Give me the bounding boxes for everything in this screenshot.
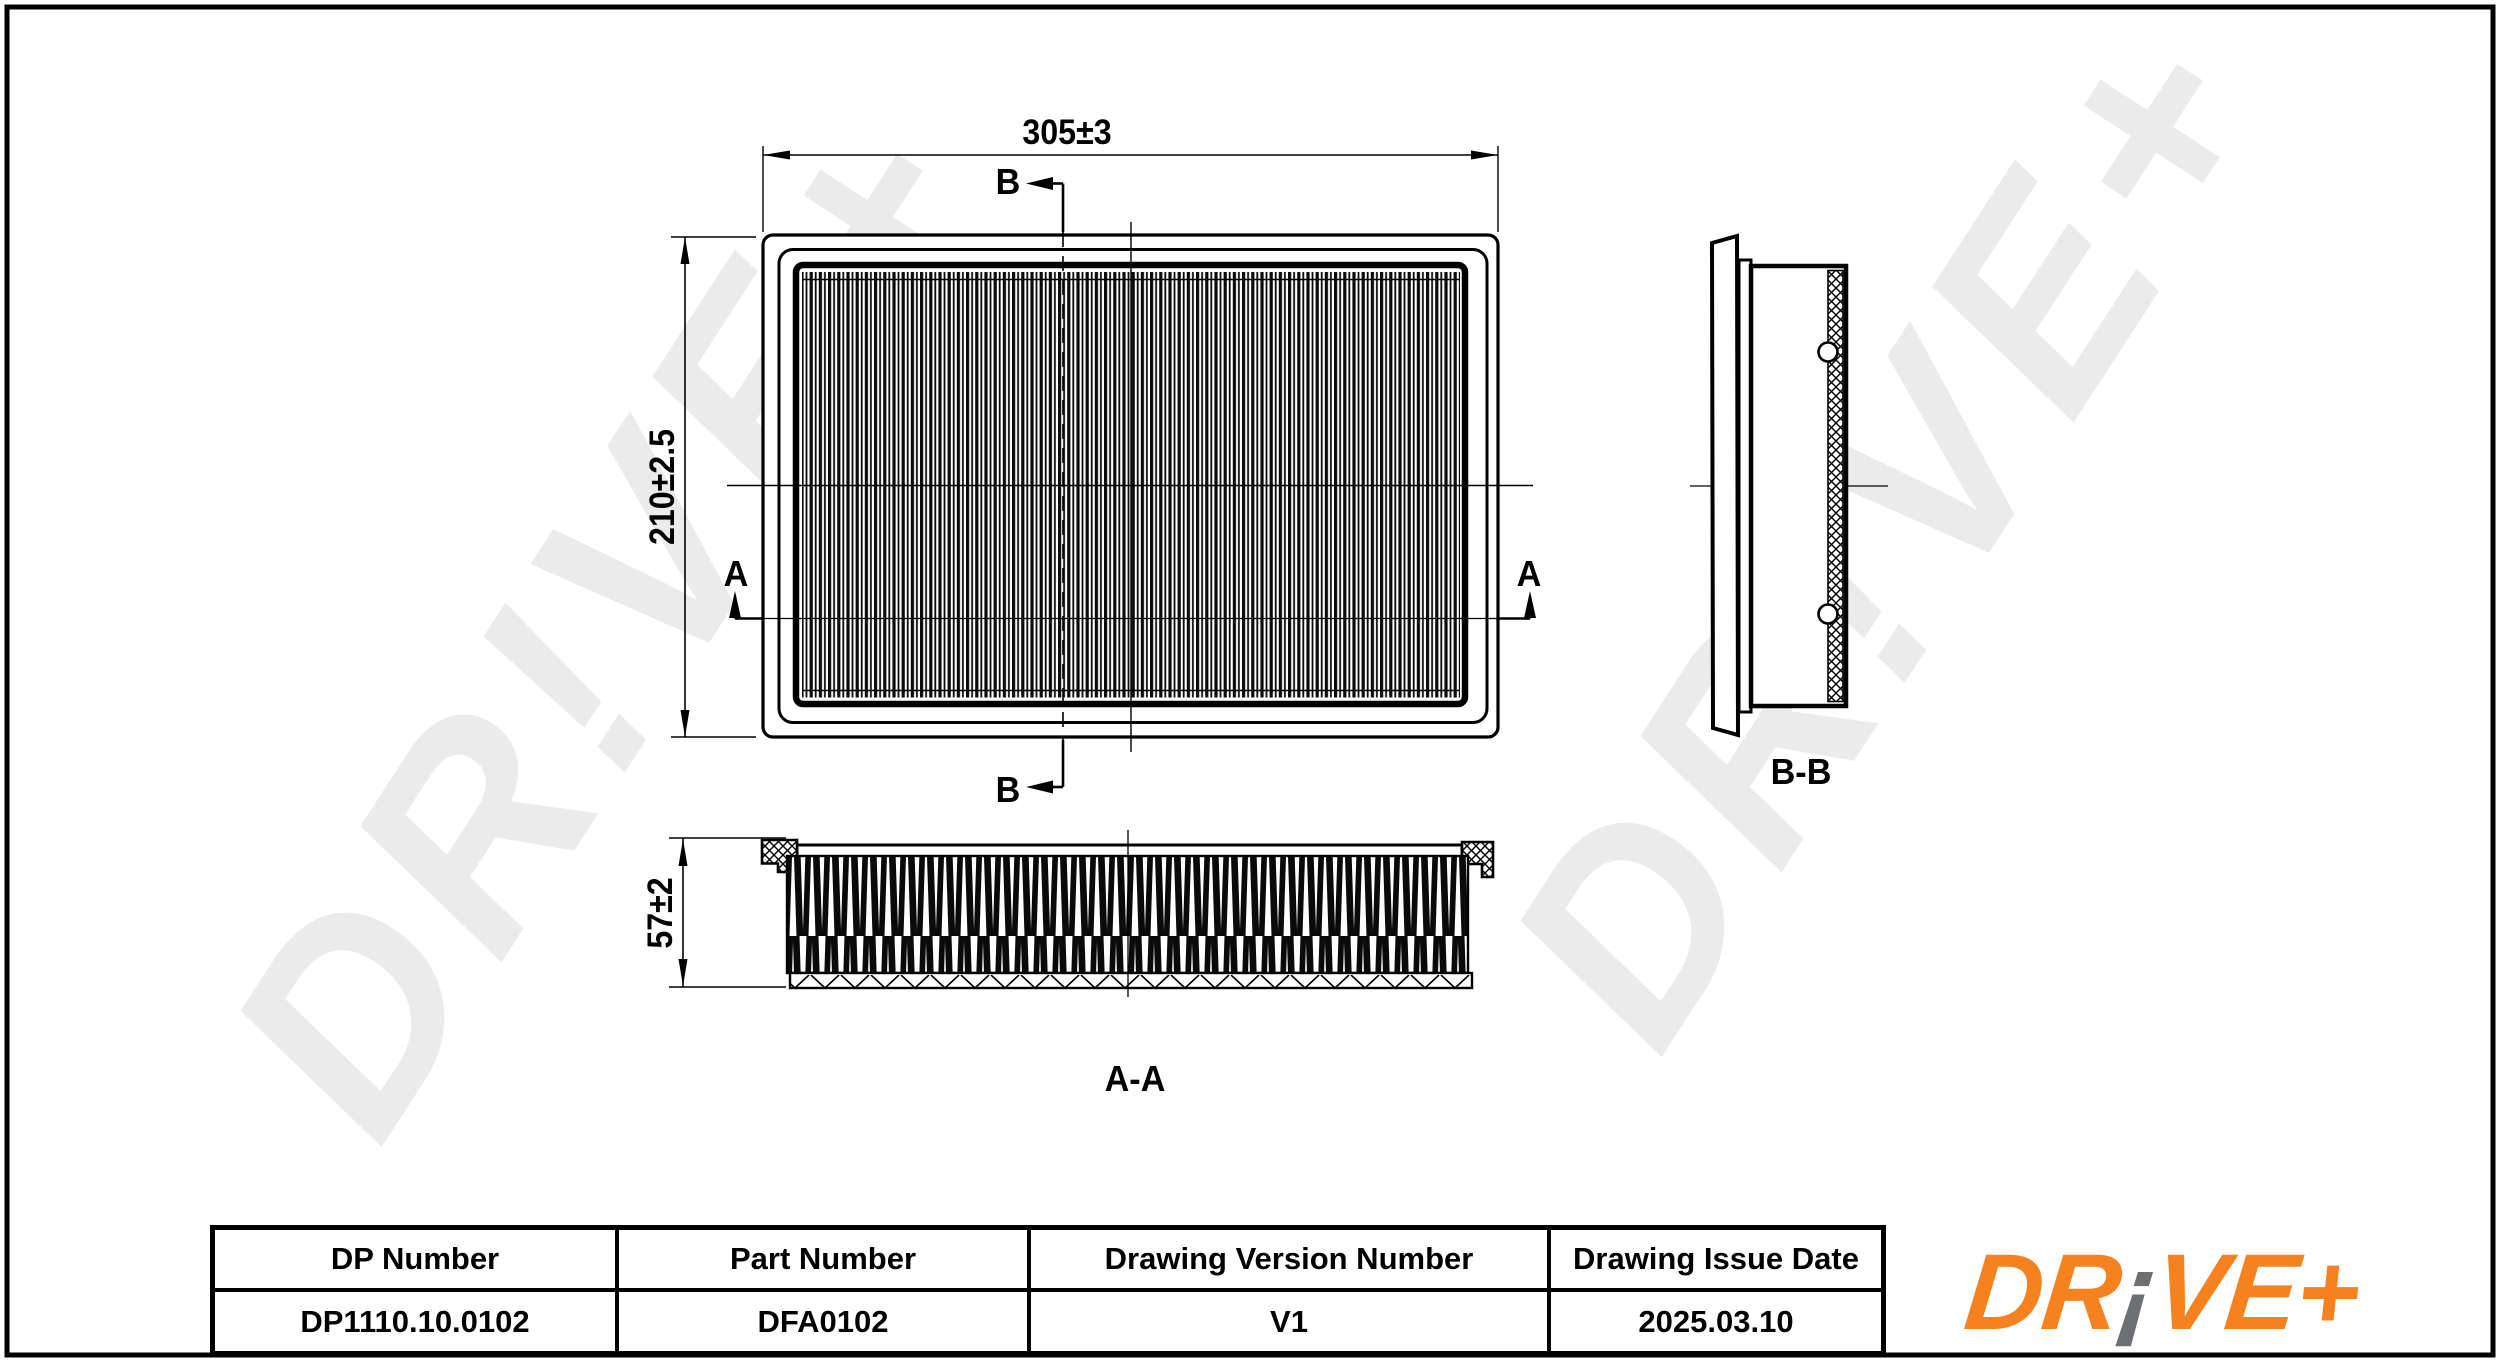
arrowhead <box>1026 781 1053 794</box>
dimension-height-text: 210±2.5 <box>644 429 683 545</box>
bb-pin-hole <box>1819 343 1838 362</box>
dimension-width: 305±3 <box>763 114 1498 232</box>
bb-pin-hole <box>1819 605 1838 624</box>
plan-view <box>727 222 1533 752</box>
bb-media-hatch <box>1828 271 1843 702</box>
arrowhead <box>763 151 790 160</box>
arrowhead <box>729 591 741 618</box>
title-block-header: Drawing Issue Date <box>1551 1230 1881 1292</box>
aa-bottom-band <box>790 973 1472 988</box>
arrowhead <box>679 839 688 866</box>
arrowhead <box>1026 177 1053 190</box>
section-label-a-left: A <box>724 554 749 594</box>
title-block-header: Part Number <box>619 1230 1027 1292</box>
dimension-height: 210±2.5 <box>644 237 756 737</box>
arrowhead <box>1471 151 1498 160</box>
bb-flange <box>1712 236 1738 735</box>
section-label-b-bottom: B <box>996 770 1021 810</box>
section-label-a-right: A <box>1517 554 1542 594</box>
logo-plus: + <box>2291 1231 2366 1352</box>
logo-text-dr: DR <box>1960 1231 2127 1352</box>
arrowhead <box>1524 591 1536 618</box>
title-block-value: 2025.03.10 <box>1551 1292 1881 1351</box>
dimension-depth-text: 57±2 <box>642 877 681 948</box>
section-label-b-top: B <box>996 162 1021 202</box>
section-view-aa: A-A <box>762 830 1493 1099</box>
title-block-column-drawing-version: Drawing Version Number V1 <box>1031 1230 1551 1351</box>
title-block-column-dp-number: DP Number DP1110.10.0102 <box>215 1230 619 1351</box>
logo-text-ve: VE <box>2149 1231 2304 1352</box>
section-view-bb: B-B <box>1690 236 1888 792</box>
title-block-column-part-number: Part Number DFA0102 <box>619 1230 1031 1351</box>
title-block-value: DP1110.10.0102 <box>215 1292 615 1351</box>
section-aa-label: A-A <box>1105 1059 1166 1099</box>
drawing-sheet: DR!VE+ DR!VE+ <box>0 0 2500 1362</box>
brand-logo: DR¡VE+ <box>1960 1238 2364 1346</box>
title-block-header: Drawing Version Number <box>1031 1230 1547 1292</box>
title-block: DP Number DP1110.10.0102 Part Number DFA… <box>210 1225 1886 1356</box>
title-block-value: V1 <box>1031 1292 1547 1351</box>
arrowhead <box>681 237 690 264</box>
title-block-column-issue-date: Drawing Issue Date 2025.03.10 <box>1551 1230 1881 1351</box>
arrowhead <box>681 710 690 737</box>
arrowhead <box>679 959 688 986</box>
title-block-value: DFA0102 <box>619 1292 1027 1351</box>
section-bb-label: B-B <box>1771 752 1832 792</box>
technical-drawing: 305±3 210±2.5 B B A <box>0 0 2500 1362</box>
dimension-width-text: 305±3 <box>1022 114 1111 153</box>
title-block-header: DP Number <box>215 1230 615 1292</box>
